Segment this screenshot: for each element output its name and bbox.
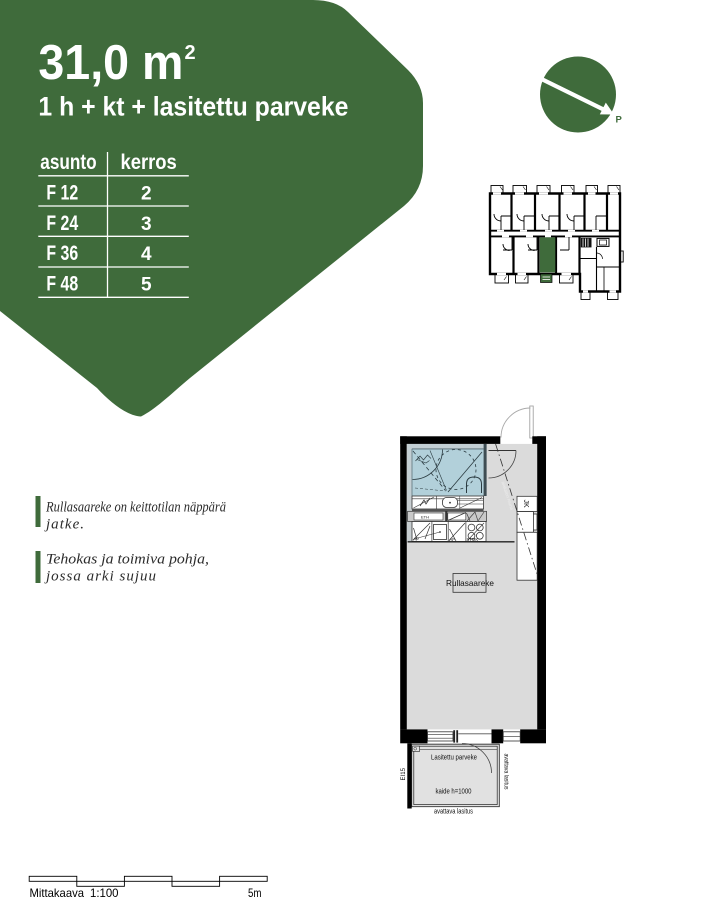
svg-text:31,0 m: 31,0 m — [38, 36, 183, 90]
svg-text:3: 3 — [141, 214, 152, 235]
svg-text:F 24: F 24 — [46, 212, 78, 235]
svg-text:5: 5 — [141, 274, 152, 295]
svg-text:kaide h=1000: kaide h=1000 — [436, 787, 472, 796]
svg-text:jossa arki sujuu: jossa arki sujuu — [44, 569, 156, 585]
svg-text:AP: AP — [450, 537, 456, 542]
svg-text:4: 4 — [141, 244, 152, 265]
svg-text:JK: JK — [522, 500, 529, 509]
svg-text:Mittakaava: Mittakaava — [30, 886, 85, 900]
svg-text:Rullasaareke on keittotilan nä: Rullasaareke on keittotilan näppärä — [45, 500, 226, 516]
svg-text:Rullasaareke: Rullasaareke — [446, 578, 494, 588]
svg-text:1:100: 1:100 — [90, 886, 119, 900]
svg-text:STMK: STMK — [467, 537, 479, 542]
svg-text:EI15: EI15 — [401, 767, 407, 780]
svg-text:2: 2 — [185, 42, 196, 64]
svg-text:F 12: F 12 — [46, 182, 78, 205]
svg-text:5m: 5m — [248, 886, 262, 900]
svg-text:P: P — [616, 115, 623, 126]
svg-text:F 48: F 48 — [46, 272, 78, 295]
svg-text:1 h + kt + lasitettu parveke: 1 h + kt + lasitettu parveke — [38, 92, 348, 122]
svg-text:F 36: F 36 — [46, 242, 78, 265]
svg-text:kerros: kerros — [121, 150, 177, 174]
svg-text:asunto: asunto — [40, 150, 96, 174]
svg-text:avattava lasitus: avattava lasitus — [434, 807, 473, 816]
svg-text:Tehokas ja toimiva pohja,: Tehokas ja toimiva pohja, — [46, 552, 209, 568]
svg-text:avattava lasitus: avattava lasitus — [503, 754, 509, 790]
svg-text:jatke.: jatke. — [44, 517, 84, 533]
svg-text:2: 2 — [141, 184, 152, 205]
svg-text:ETH: ETH — [421, 515, 429, 520]
svg-text:Lasitettu parveke: Lasitettu parveke — [431, 753, 477, 762]
